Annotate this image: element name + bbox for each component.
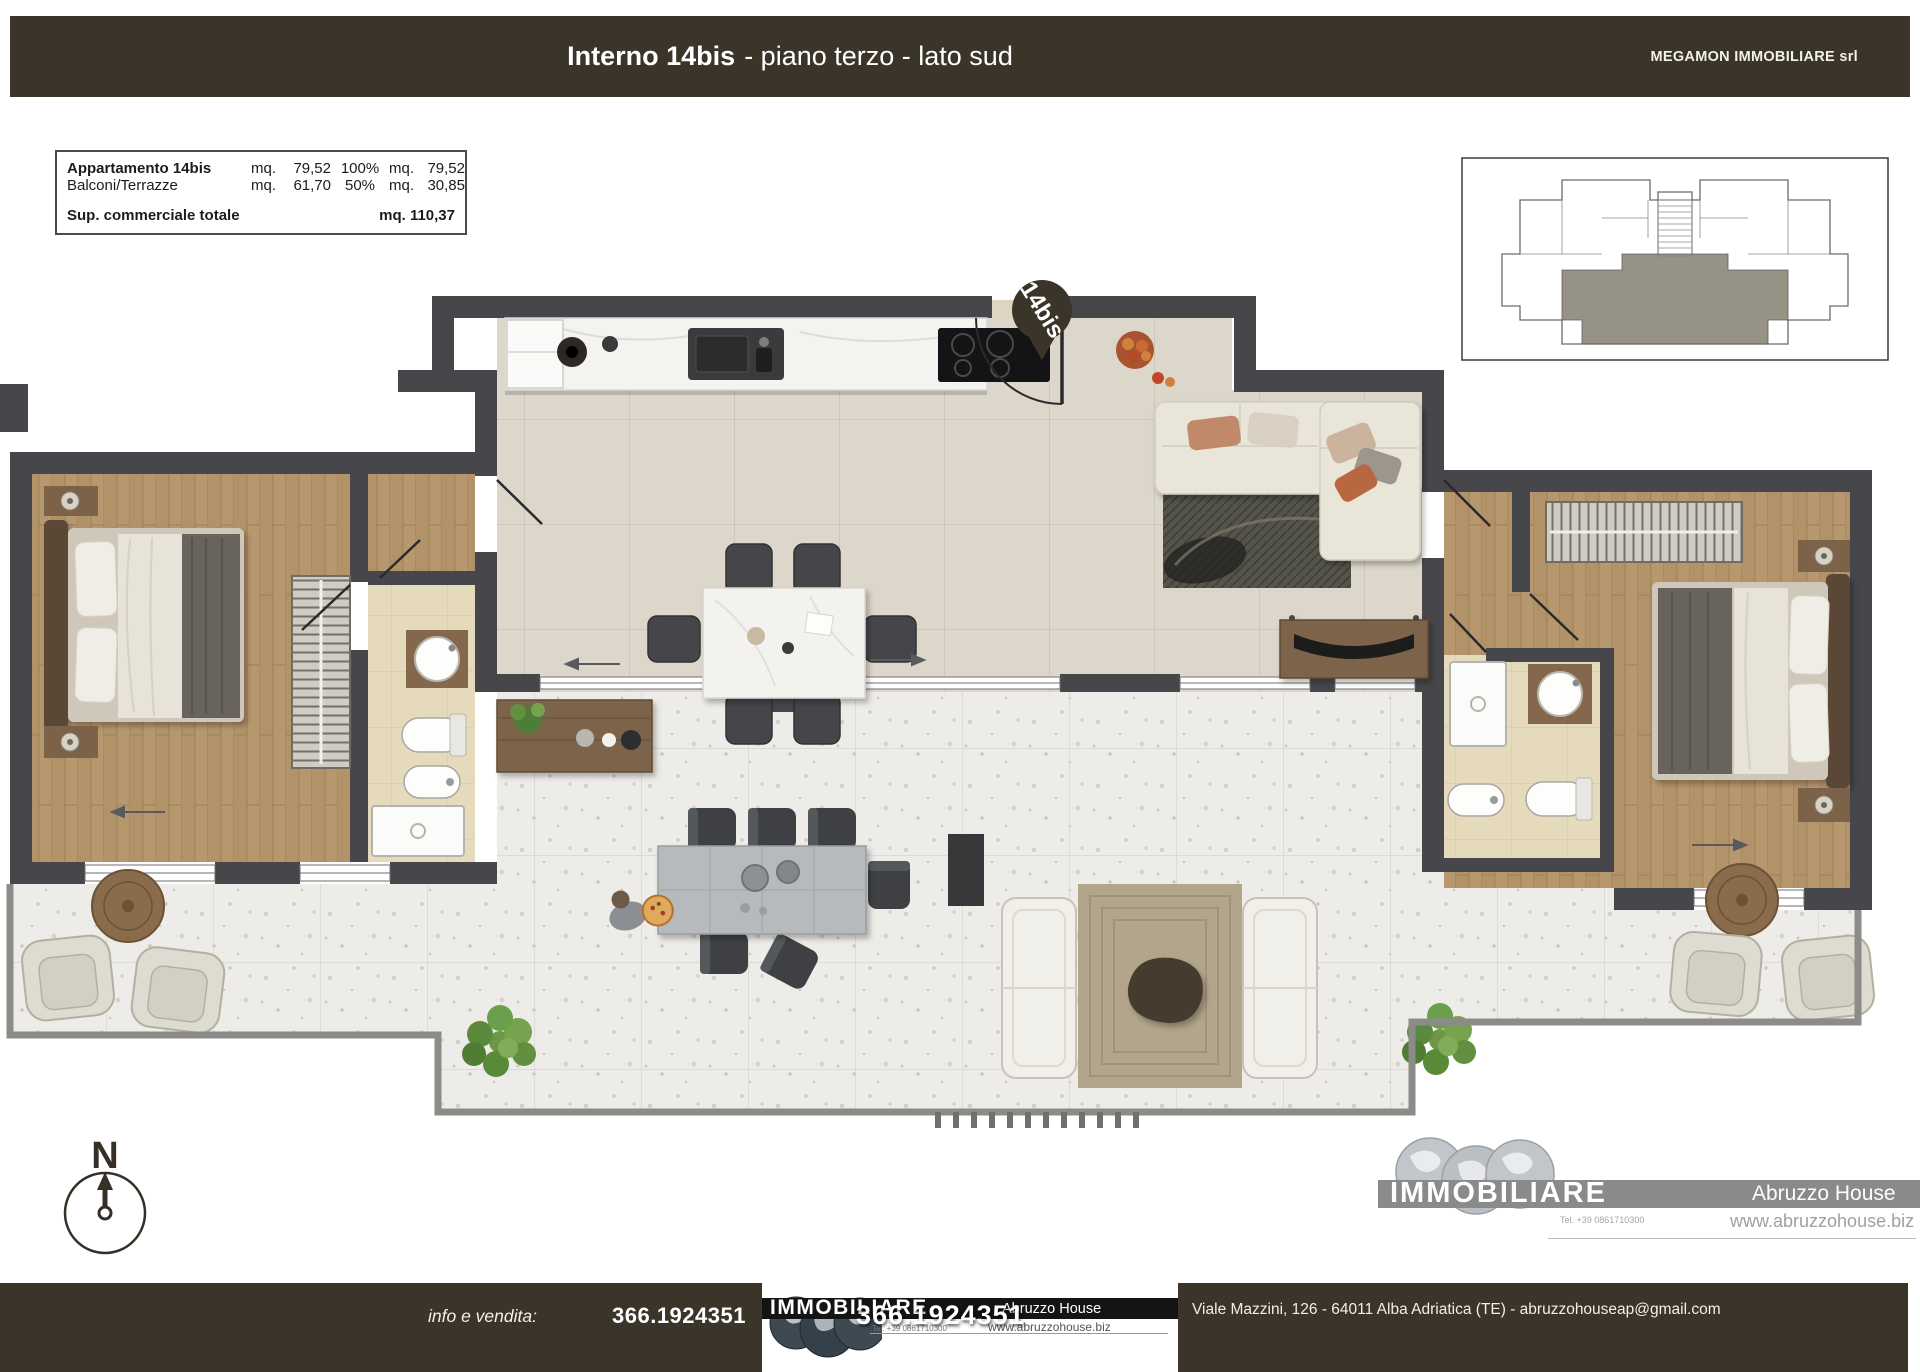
sideboard: [497, 700, 652, 772]
shower: [1450, 662, 1506, 746]
north-compass-icon: N: [65, 1135, 145, 1253]
bed-left: [44, 520, 244, 730]
bidet: [404, 766, 460, 798]
title-main: Interno 14bis: [567, 41, 735, 72]
agency-name: Abruzzo House: [1752, 1182, 1896, 1206]
bidet: [1448, 784, 1504, 816]
side-table: [1706, 864, 1778, 936]
table-row: Balconi/Terrazze mq. 61,70 50% mq. 30,85: [67, 177, 455, 194]
divider: [870, 1333, 1168, 1334]
bed-right: [1652, 574, 1850, 788]
row-label: Balconi/Terrazze: [67, 177, 251, 194]
agency-logo: IMMOBILIARE Abruzzo House Tel. +39 08617…: [1378, 1112, 1920, 1257]
sink: [415, 637, 459, 681]
fridge: [507, 320, 563, 388]
wardrobe-left: [292, 576, 350, 768]
row-label: Appartamento 14bis: [67, 160, 251, 177]
armchair: [1669, 930, 1764, 1017]
coffee-table: [1128, 958, 1203, 1023]
footer-address-block: Viale Mazzini, 126 - 64011 Alba Adriatic…: [1178, 1283, 1908, 1372]
agency-tel: Tel. +39 0861710300: [1560, 1215, 1644, 1225]
divider: [1548, 1238, 1916, 1239]
compass-label: N: [91, 1135, 118, 1177]
footer-phone[interactable]: 366.1924351: [612, 1303, 746, 1329]
agency-website[interactable]: www.abruzzohouse.biz: [1730, 1211, 1914, 1232]
footer-logo-block: IMMOBILIARE Abruzzo House Tel. +39 08617…: [762, 1283, 1178, 1372]
tv-console: [1280, 615, 1428, 678]
side-table: [92, 870, 164, 942]
table-row: Appartamento 14bis mq. 79,52 100% mq. 79…: [67, 160, 455, 177]
key-plan-inset: [1462, 158, 1888, 360]
armchair: [20, 934, 116, 1023]
area-summary-table: Appartamento 14bis mq. 79,52 100% mq. 79…: [55, 150, 467, 235]
outdoor-dining-table: [658, 846, 866, 934]
footer-address: Viale Mazzini, 126 - 64011 Alba Adriatic…: [1192, 1301, 1721, 1319]
table-total-row: Sup. commerciale totale mq. 110,37: [67, 207, 455, 224]
sink: [1538, 672, 1582, 716]
dining-table: [703, 588, 865, 698]
toilet: [402, 714, 466, 756]
header-bar: Interno 14bis - piano terzo - lato sud M…: [10, 16, 1910, 97]
footer-left-block: info e vendita: 366.1924351: [0, 1283, 762, 1372]
column: [948, 834, 984, 906]
footer-phone-overlay: 366.1924351: [856, 1300, 1025, 1331]
toilet: [1526, 778, 1592, 820]
armchair: [129, 945, 226, 1035]
brand-name: IMMOBILIARE: [1390, 1177, 1607, 1210]
company-name: MEGAMON IMMOBILIARE srl: [1651, 49, 1859, 65]
wardrobe-right: [1546, 502, 1742, 562]
armchair: [1780, 934, 1876, 1023]
page-title: Interno 14bis - piano terzo - lato sud: [10, 16, 1570, 97]
shower: [372, 806, 464, 856]
kitchen-sink: [688, 328, 784, 380]
outdoor-lounge: [1002, 884, 1317, 1088]
logo-banner: IMMOBILIARE Abruzzo House: [1378, 1180, 1920, 1208]
title-sub: - piano terzo - lato sud: [744, 41, 1013, 72]
footer-info-label: info e vendita:: [428, 1306, 537, 1327]
